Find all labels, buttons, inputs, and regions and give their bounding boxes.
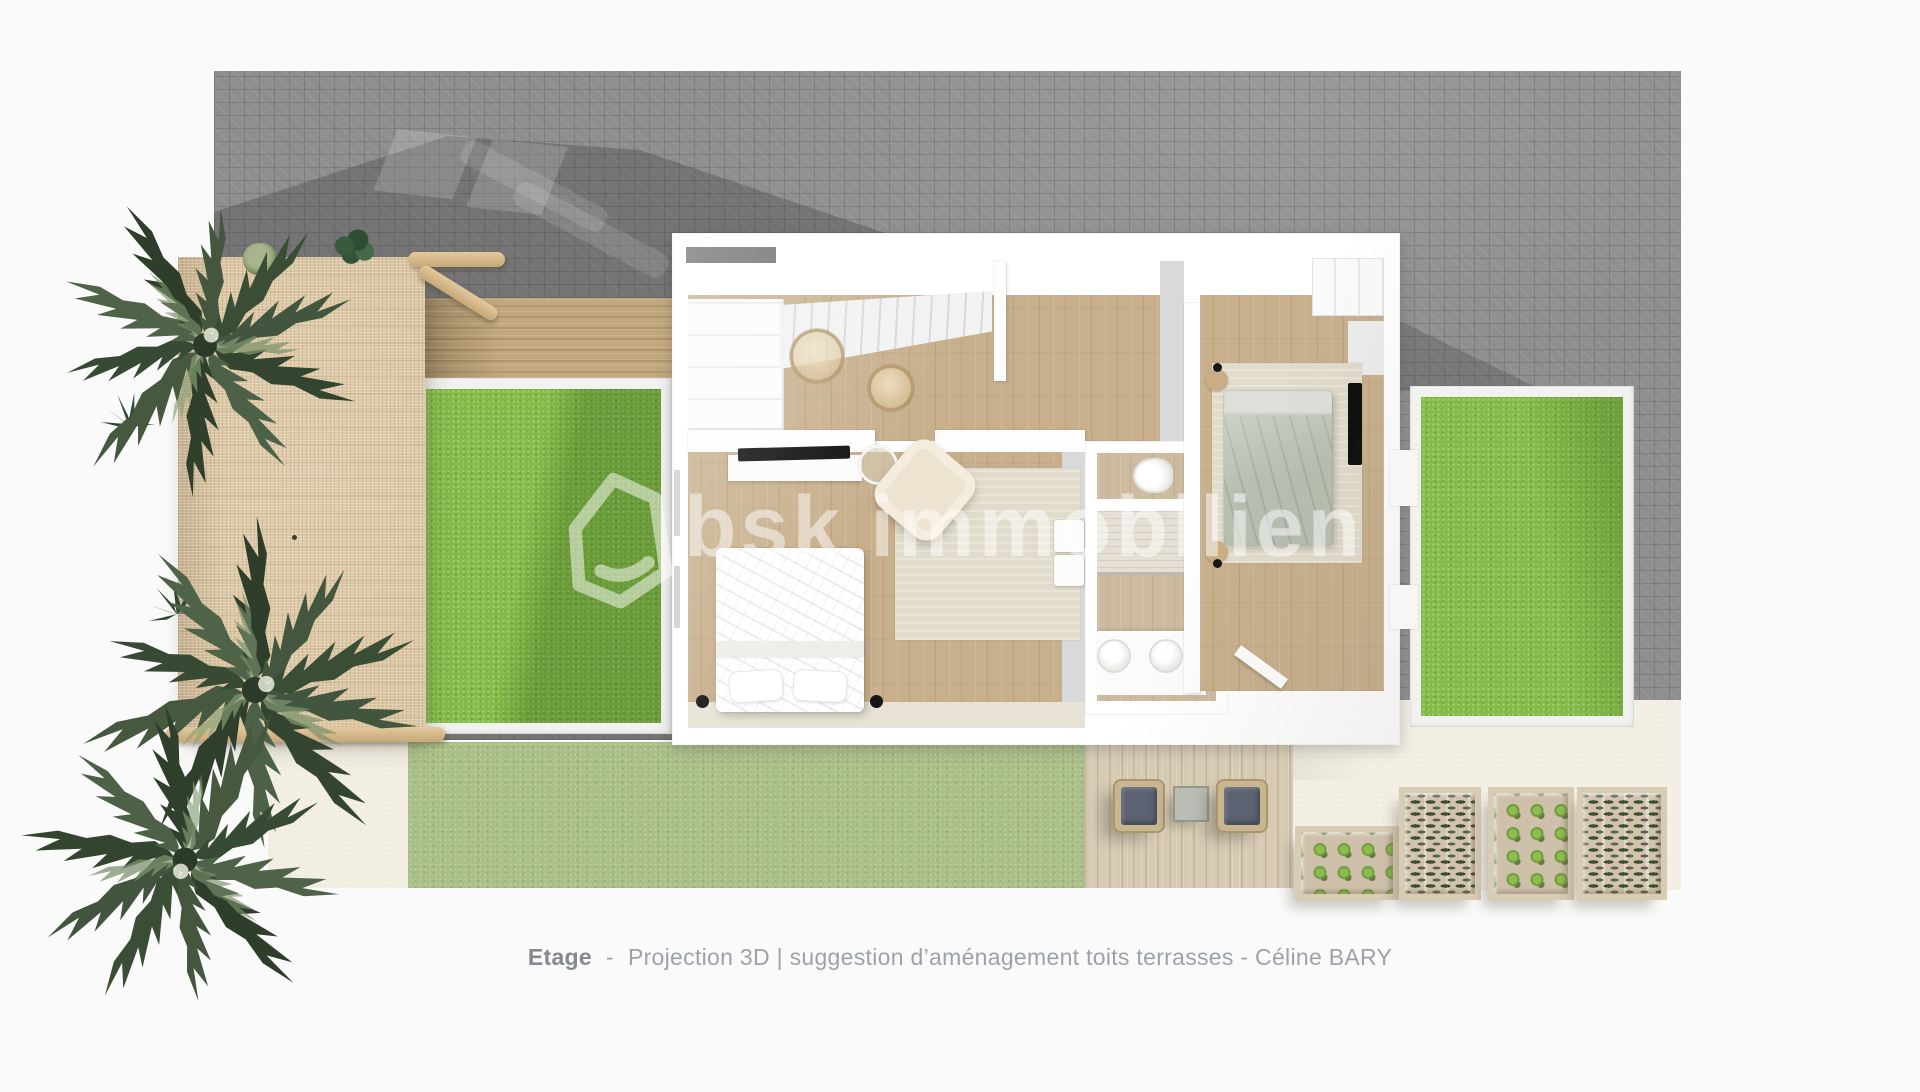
- wicker-pendant-lamp: [868, 365, 914, 411]
- watermark-suffix: immobilien: [870, 479, 1364, 575]
- hall-closet: [688, 299, 784, 430]
- round-sink: [1151, 641, 1181, 671]
- seedling-planter: [1399, 787, 1481, 900]
- deck-armchair: [1216, 779, 1268, 833]
- chair-cushion: [1224, 787, 1260, 825]
- window: [674, 470, 680, 536]
- corridor-wall-shadow: [1160, 261, 1184, 441]
- right-terrace-lawn: [1421, 397, 1623, 716]
- lettuce-planter: [1488, 787, 1574, 900]
- floorplan-scene: bskimmobilien Etage-Projection 3D | sugg…: [0, 0, 1920, 1080]
- wicker-pendant-lamp: [790, 329, 844, 383]
- round-sink: [1099, 641, 1129, 671]
- bedside-lamp: [870, 695, 883, 708]
- upper-wood-deck: [425, 298, 678, 384]
- garden-strip: [408, 742, 1085, 888]
- deck-side-table: [1173, 786, 1209, 822]
- pergola-beam: [408, 252, 505, 267]
- bed-fold: [716, 641, 864, 657]
- bed-pillow: [729, 669, 783, 703]
- lawn-shadow: [1421, 397, 1623, 716]
- caption-text: Projection 3D | suggestion d’aménagement…: [628, 944, 1392, 970]
- deck-armchair: [1113, 779, 1165, 833]
- wardrobe: [1312, 258, 1384, 316]
- interior-wall: [994, 261, 1006, 381]
- right-grass-terrace: [1410, 386, 1634, 727]
- caption-separator: -: [606, 944, 614, 970]
- nightstand: [1206, 369, 1228, 391]
- watermark-brand: bskimmobilien: [684, 478, 1364, 577]
- bedside-lamp: [696, 695, 709, 708]
- terrace-door-threshold: [1390, 585, 1418, 629]
- chair-cushion: [1121, 787, 1157, 825]
- house-outline-icon: [544, 459, 686, 623]
- interior-wall: [935, 430, 1085, 452]
- watermark-prefix: bsk: [684, 479, 844, 575]
- lower-wood-deck: [1085, 742, 1293, 888]
- lettuce-planter: [1295, 826, 1399, 900]
- nightstand-lamp: [1213, 363, 1222, 372]
- wall-tv-screen: [1348, 383, 1362, 465]
- seedling-planter: [1577, 787, 1667, 900]
- bed-pillow: [793, 670, 846, 703]
- right-bed-pillows: [1224, 391, 1332, 415]
- stairwell-void: [686, 247, 776, 263]
- terrace-door-threshold: [1390, 450, 1418, 506]
- caption-title: Etage: [528, 944, 592, 970]
- caption: Etage-Projection 3D | suggestion d’aména…: [0, 944, 1920, 971]
